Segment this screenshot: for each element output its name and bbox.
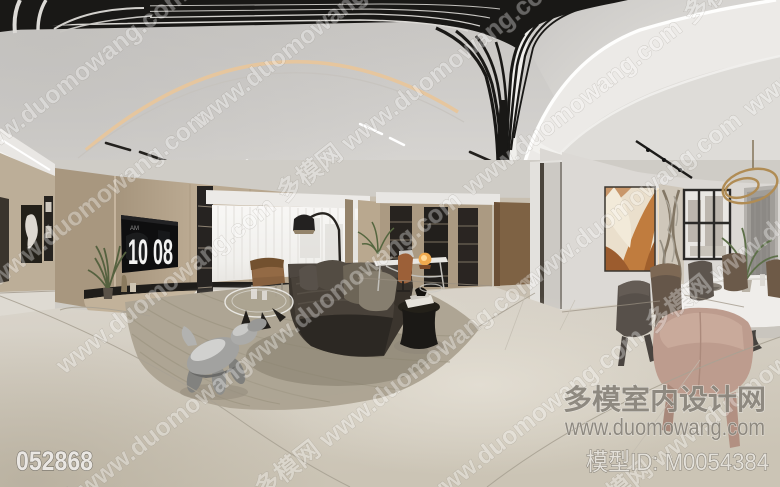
svg-text:模型ID: M0054384: 模型ID: M0054384 — [586, 449, 769, 476]
svg-text:052868: 052868 — [16, 446, 93, 476]
svg-text:www.duomowang.com: www.duomowang.com — [564, 414, 765, 440]
svg-text:多模室内设计网: 多模室内设计网 — [563, 383, 766, 415]
svg-text:AM: AM — [130, 226, 139, 232]
